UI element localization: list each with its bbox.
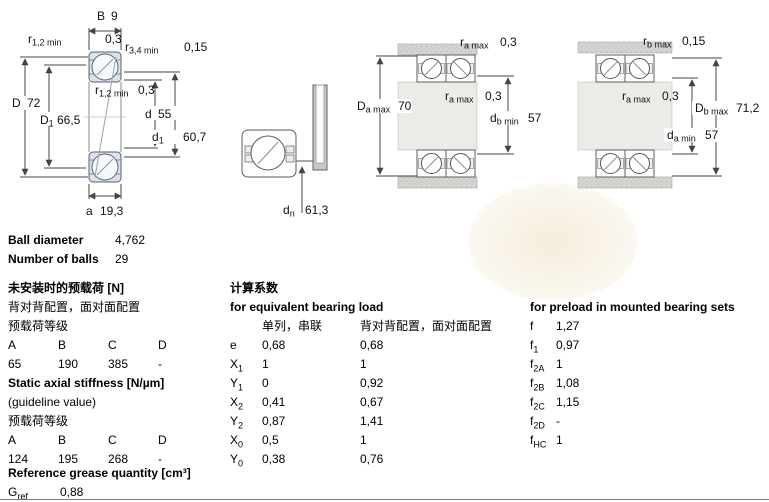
dim-label-D: D72 [12, 96, 41, 110]
dim-label-ra-max-top: ra max0,3 [460, 35, 517, 51]
calc-header-row: 单列，串联背对背配置，面对面配置 [230, 317, 530, 336]
preload-unmounted-subtitle: 背对背配置，面对面配置 [8, 298, 228, 317]
calc-row-e: e0,680,68 [230, 336, 530, 355]
factor-row-f2A: f2A1 [530, 355, 760, 374]
stiffness-title: Static axial stiffness [N/µm] [8, 374, 228, 393]
stiffness-class-headers: ABCD [8, 431, 228, 450]
calc-title: 计算系数 [230, 279, 530, 298]
figure-paired-bearings-shaft-abutments: ra max0,3 Da max70 ra max0,3 db min57 [348, 30, 548, 210]
grease-value: 0,88 [60, 485, 83, 499]
bearing-datasheet-page: B9 r1,2 min0,3 r3,4 min0,15 D72 D166,5 r… [0, 0, 769, 502]
calc-row-Y2: Y20,871,41 [230, 412, 530, 431]
shaft [398, 82, 477, 150]
housing-bottom [398, 177, 477, 188]
calc-factors-column: 计算系数 for equivalent bearing load 单列，串联背对… [230, 279, 530, 469]
factor-row-f2D: f2D- [530, 412, 760, 431]
factor-row-f: f1,27 [530, 317, 760, 336]
factor-row-fHC: fHC1 [530, 431, 760, 450]
figure-paired-bearings-housing-abutments: rb max0,15 ra max0,3 Db max71,2 da min57 [560, 30, 769, 210]
dim-label-B: B9 [97, 9, 118, 23]
page-bottom-divider [0, 499, 769, 500]
spec-row-number-of-balls: Number of balls29 [8, 250, 228, 269]
ball-diameter-value: 4,762 [115, 233, 145, 247]
spec-row-ball-diameter: Ball diameter4,762 [8, 231, 228, 250]
equiv-load-title: for equivalent bearing load [230, 298, 530, 317]
calc-row-X2: X20,410,67 [230, 393, 530, 412]
figure-bearing-with-sleeve: dn61,3 [230, 80, 345, 220]
left-spec-column: Ball diameter4,762 Number of balls29 未安装… [8, 231, 228, 502]
preload-class-values: 65190385- [8, 355, 228, 374]
preload-class-headers: ABCD [8, 336, 228, 355]
housing-bottom [578, 177, 672, 188]
factor-row-f1: f10,97 [530, 336, 760, 355]
calc-row-X1: X111 [230, 355, 530, 374]
dim-label-D1: D166,5 [40, 113, 81, 129]
factor-row-f2C: f2C1,15 [530, 393, 760, 412]
calc-row-Y1: Y100,92 [230, 374, 530, 393]
preload-factors-title: for preload in mounted bearing sets [530, 298, 760, 317]
number-of-balls-value: 29 [115, 252, 128, 266]
calc-row-X0: X00,51 [230, 431, 530, 450]
preload-grade-label: 预载荷等级 [8, 317, 228, 336]
dim-label-r12-mid: r1,2 min0,3 [95, 83, 155, 99]
preload-factors-column: for preload in mounted bearing sets f1,2… [530, 298, 760, 450]
dim-label-dn: dn61,3 [283, 203, 329, 219]
dim-label-d: d55 [145, 107, 172, 121]
dim-label-a: a19,3 [86, 204, 124, 218]
calc-row-Y0: Y00,380,76 [230, 450, 530, 469]
stiffness-grade-label: 预载荷等级 [8, 412, 228, 431]
preload-unmounted-title: 未安装时的预载荷 [N] [8, 279, 228, 298]
figure-single-bearing-cross-section: B9 r1,2 min0,3 r3,4 min0,15 D72 D166,5 r… [0, 0, 230, 227]
stiffness-subtitle: (guideline value) [8, 393, 228, 412]
factor-row-f2B: f2B1,08 [530, 374, 760, 393]
dim-label-rb-max: rb max0,15 [643, 34, 706, 50]
dim-label-r12-top: r1,2 min0,3 [28, 32, 122, 48]
dim-label-r34: r3,4 min0,15 [125, 40, 208, 56]
